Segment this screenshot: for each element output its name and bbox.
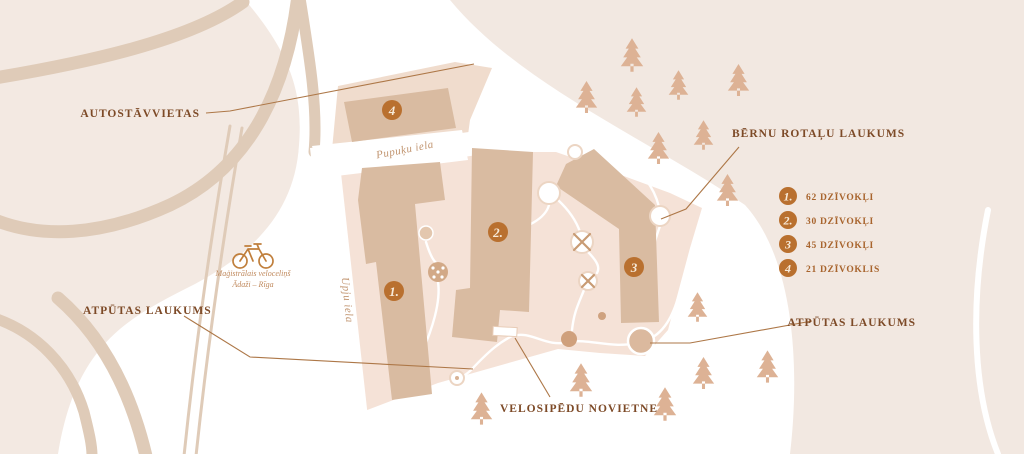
svg-text:2.: 2. [492, 225, 503, 240]
svg-text:4: 4 [388, 103, 396, 118]
legend-text-4: 21 DZĪVOKLIS [806, 264, 880, 275]
pine-tree-icon [693, 357, 714, 389]
site-plan-svg: 1. 2. 3 4 Pupuķu iela Upju iela [0, 0, 1024, 454]
building-1-marker[interactable]: 1. [384, 281, 404, 301]
building-2-marker[interactable]: 2. [488, 222, 508, 242]
pine-tree-icon [570, 363, 592, 397]
lawn-circle-2 [568, 145, 582, 159]
road-curve-3 [300, 0, 315, 152]
site-plan-illustration: 1. 2. 3 4 Pupuķu iela Upju iela [0, 0, 1024, 454]
path-node-dot [455, 376, 459, 380]
label-parking: AUTOSTĀVVIETAS [80, 107, 200, 120]
pine-tree-icon [757, 350, 778, 382]
building-4-marker[interactable]: 4 [382, 100, 402, 120]
svg-text:1.: 1. [389, 284, 399, 299]
bike-path-caption-1: Maģistrālais veloceliņš [215, 269, 292, 279]
small-lawn [419, 226, 433, 240]
playground-circle [650, 206, 670, 226]
round-tree [561, 331, 577, 347]
svg-text:3: 3 [630, 260, 638, 275]
legend-number-3: 3 [784, 238, 791, 252]
building-3-marker[interactable]: 3 [624, 257, 644, 277]
street-fork [462, 112, 558, 145]
legend-text-3: 45 DZĪVOKĻI [806, 240, 874, 251]
label-rest-right: ATPŪTAS LAUKUMS [787, 316, 916, 329]
rest-area-circle [628, 328, 654, 354]
bike-storage-rect [493, 326, 517, 336]
legend-text-2: 30 DZĪVOKĻI [806, 216, 874, 227]
label-rest-left: ATPŪTAS LAUKUMS [83, 304, 212, 317]
small-tree-dot [598, 312, 606, 320]
legend-number-4: 4 [784, 262, 791, 276]
label-bike-storage: VELOSIPĒDU NOVIETNE [500, 402, 658, 415]
pine-tree-icon [471, 392, 492, 424]
legend-number-1: 1. [784, 190, 793, 204]
bike-path-caption-2: Ādaži – Rīga [231, 280, 273, 289]
legend-text-1: 62 DZĪVOKĻI [806, 192, 874, 203]
pine-tree-icon [688, 292, 708, 321]
legend-number-2: 2. [783, 214, 793, 228]
lawn-circle-1 [538, 182, 560, 204]
label-playground: BĒRNU ROTAĻU LAUKUMS [732, 127, 905, 141]
